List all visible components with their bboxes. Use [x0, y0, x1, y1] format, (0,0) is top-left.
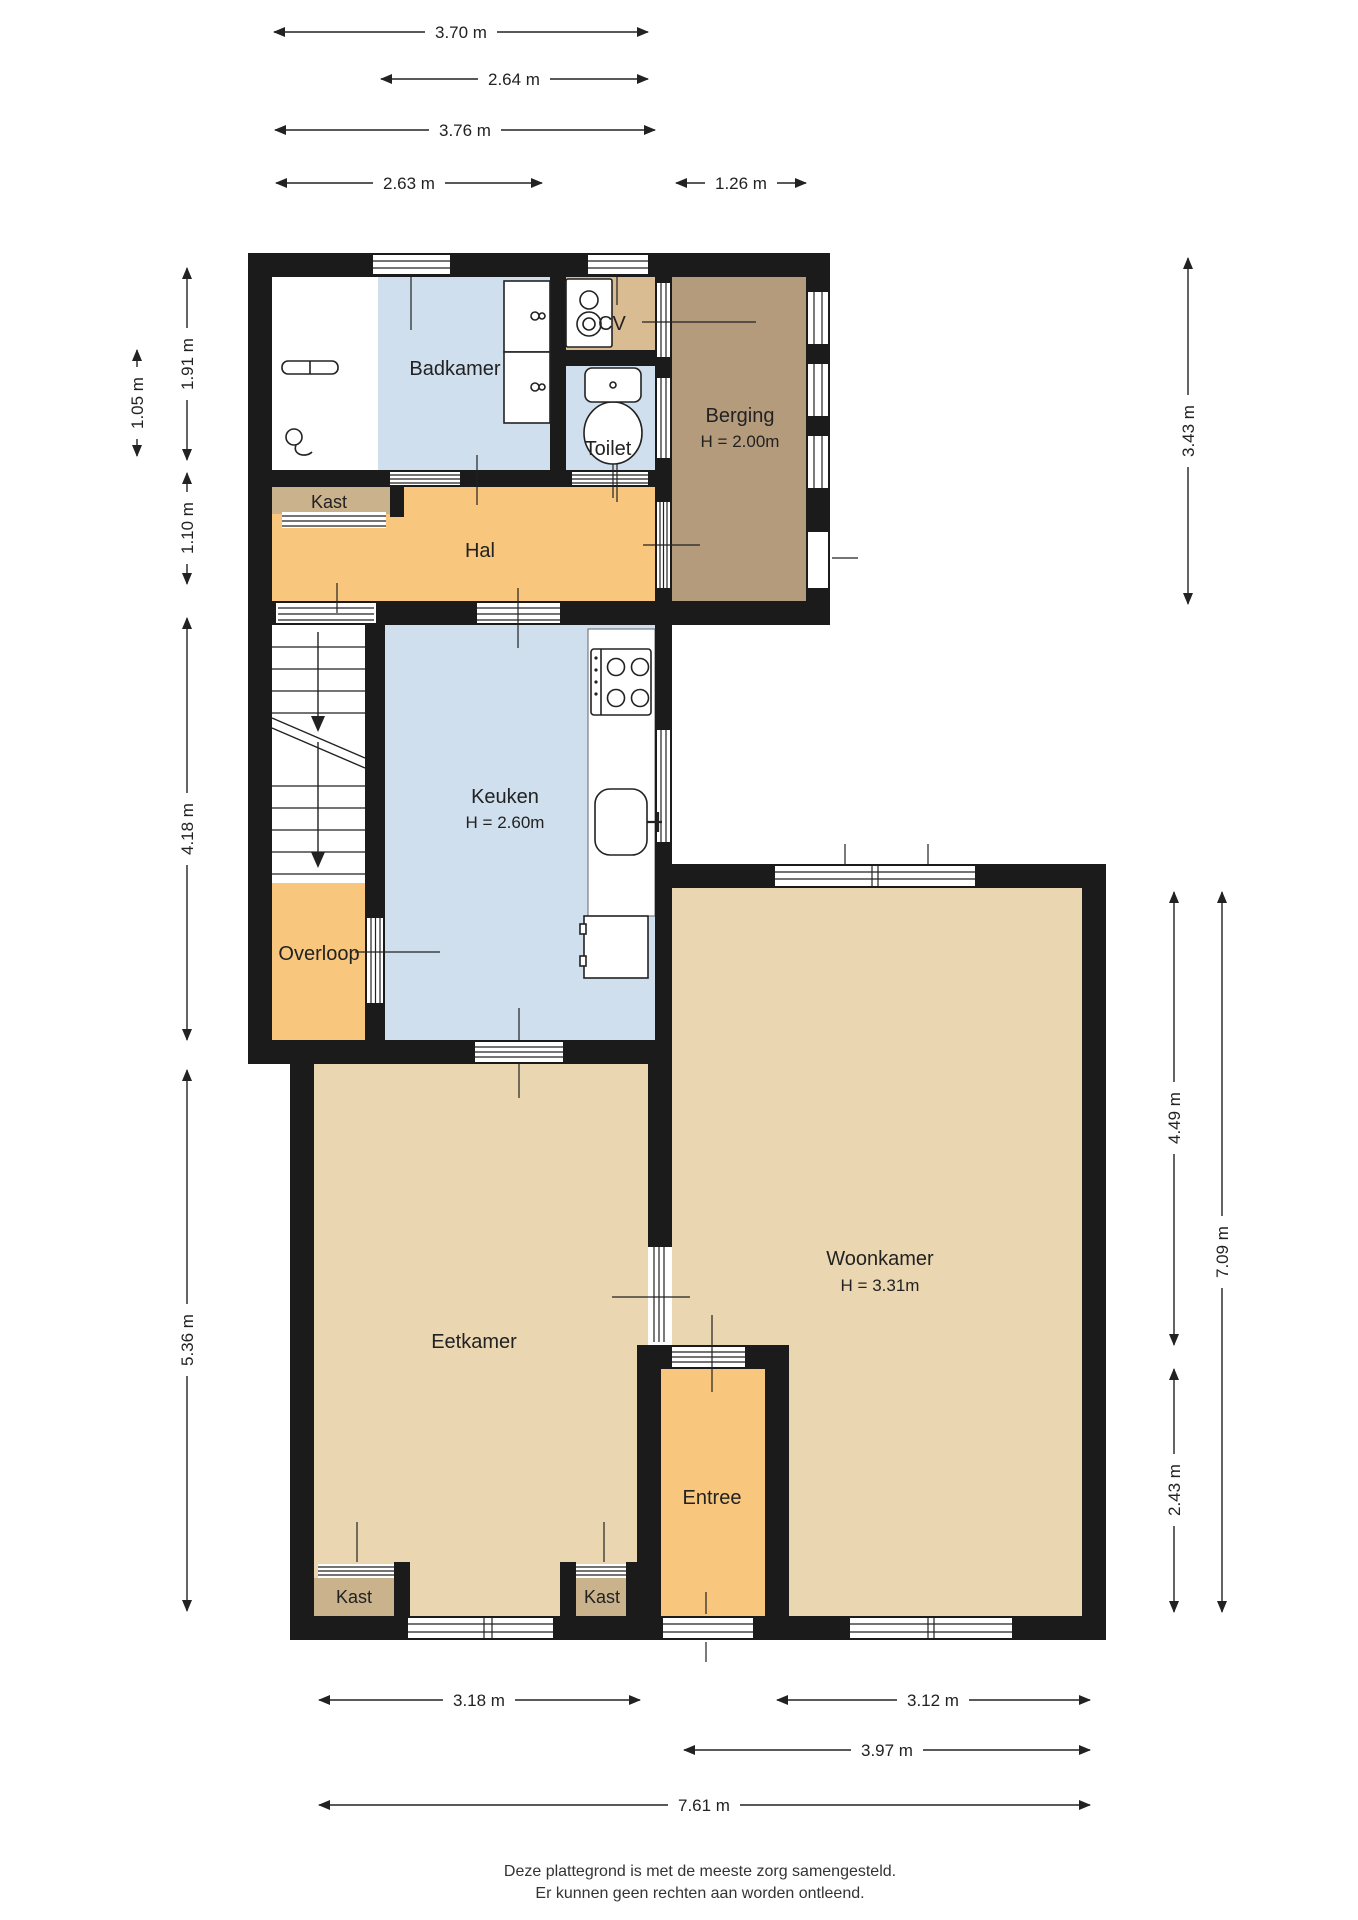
- window-berging-3: [808, 436, 828, 488]
- window-badkamer-top: [373, 255, 450, 274]
- label-badkamer: Badkamer: [409, 358, 500, 380]
- window-woonkamer-bottom: [850, 1618, 1012, 1638]
- label-berging-height: H = 2.00m: [701, 432, 780, 451]
- label-woonkamer: Woonkamer: [826, 1248, 934, 1270]
- window-berging-2: [808, 364, 828, 416]
- dim-top-3: 3.76 m: [439, 121, 491, 140]
- label-toilet: Toilet: [585, 438, 632, 460]
- label-kast-links: Kast: [336, 1587, 372, 1607]
- woonkamer-floor-lower: [789, 1345, 1082, 1616]
- dim-bottom-4: 7.61 m: [678, 1796, 730, 1815]
- dim-left-3: 1.10 m: [178, 502, 197, 554]
- floorplan-page: 3.70 m 2.64 m 3.76 m 2.63 m 1.26 m 1.05 …: [0, 0, 1358, 1920]
- label-overloop: Overloop: [278, 943, 359, 965]
- stove-icon: [591, 649, 651, 715]
- window-woonkamer-top: [775, 866, 975, 886]
- label-keuken-height: H = 2.60m: [466, 813, 545, 832]
- label-kast-hal: Kast: [311, 492, 347, 512]
- dim-right-1: 3.43 m: [1179, 405, 1198, 457]
- label-keuken: Keuken: [471, 786, 539, 808]
- dim-bottom-1: 3.18 m: [453, 1691, 505, 1710]
- footer: Deze plattegrond is met de meeste zorg s…: [504, 1863, 896, 1902]
- window-cv-top: [588, 255, 648, 274]
- dim-top-4: 2.63 m: [383, 174, 435, 193]
- door-eetkamer-woonkamer: [650, 1247, 670, 1342]
- footer-line-2: Er kunnen geen rechten aan worden ontlee…: [535, 1885, 864, 1902]
- label-berging: Berging: [706, 405, 775, 427]
- floor-plan: 3.70 m 2.64 m 3.76 m 2.63 m 1.26 m 1.05 …: [0, 0, 1358, 1920]
- label-eetkamer: Eetkamer: [431, 1331, 517, 1353]
- kitchen-appliance-icon: [580, 916, 648, 978]
- door-berging-right: [808, 532, 828, 588]
- dim-left-4: 4.18 m: [178, 803, 197, 855]
- window-eetkamer-bottom: [408, 1618, 553, 1638]
- dim-right-2: 4.49 m: [1165, 1092, 1184, 1144]
- bathroom-cabinet-icon: [504, 281, 550, 423]
- dim-top-2: 2.64 m: [488, 70, 540, 89]
- dim-bottom-2: 3.12 m: [907, 1691, 959, 1710]
- window-toilet-berging: [657, 378, 670, 458]
- dim-right-3: 7.09 m: [1213, 1226, 1232, 1278]
- dim-left-1: 1.05 m: [128, 377, 147, 429]
- dim-left-5: 5.36 m: [178, 1314, 197, 1366]
- label-hal: Hal: [465, 540, 495, 562]
- dim-bottom-3: 3.97 m: [861, 1741, 913, 1760]
- label-cv: CV: [598, 313, 626, 335]
- window-berging-1: [808, 292, 828, 344]
- dim-top-1: 3.70 m: [435, 23, 487, 42]
- footer-line-1: Deze plattegrond is met de meeste zorg s…: [504, 1863, 896, 1880]
- label-entree: Entree: [683, 1487, 742, 1509]
- dim-right-4: 2.43 m: [1165, 1464, 1184, 1516]
- label-kast-rechts: Kast: [584, 1587, 620, 1607]
- label-woonkamer-height: H = 3.31m: [841, 1276, 920, 1295]
- dim-left-2: 1.91 m: [178, 338, 197, 390]
- window-cv-berging: [657, 283, 670, 357]
- dim-top-5: 1.26 m: [715, 174, 767, 193]
- front-door-entree: [663, 1618, 753, 1638]
